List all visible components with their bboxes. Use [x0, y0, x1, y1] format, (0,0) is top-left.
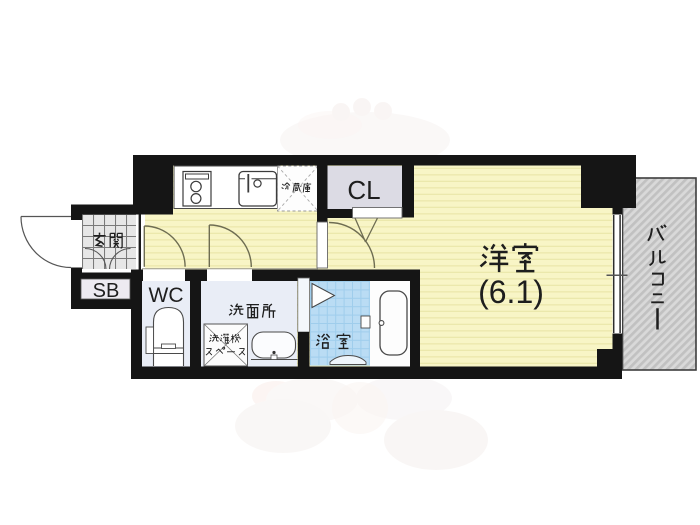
svg-text:CL: CL [347, 175, 380, 205]
svg-text:SB: SB [93, 280, 120, 302]
svg-text:WC: WC [149, 284, 184, 307]
svg-text:(6.1): (6.1) [478, 274, 544, 310]
